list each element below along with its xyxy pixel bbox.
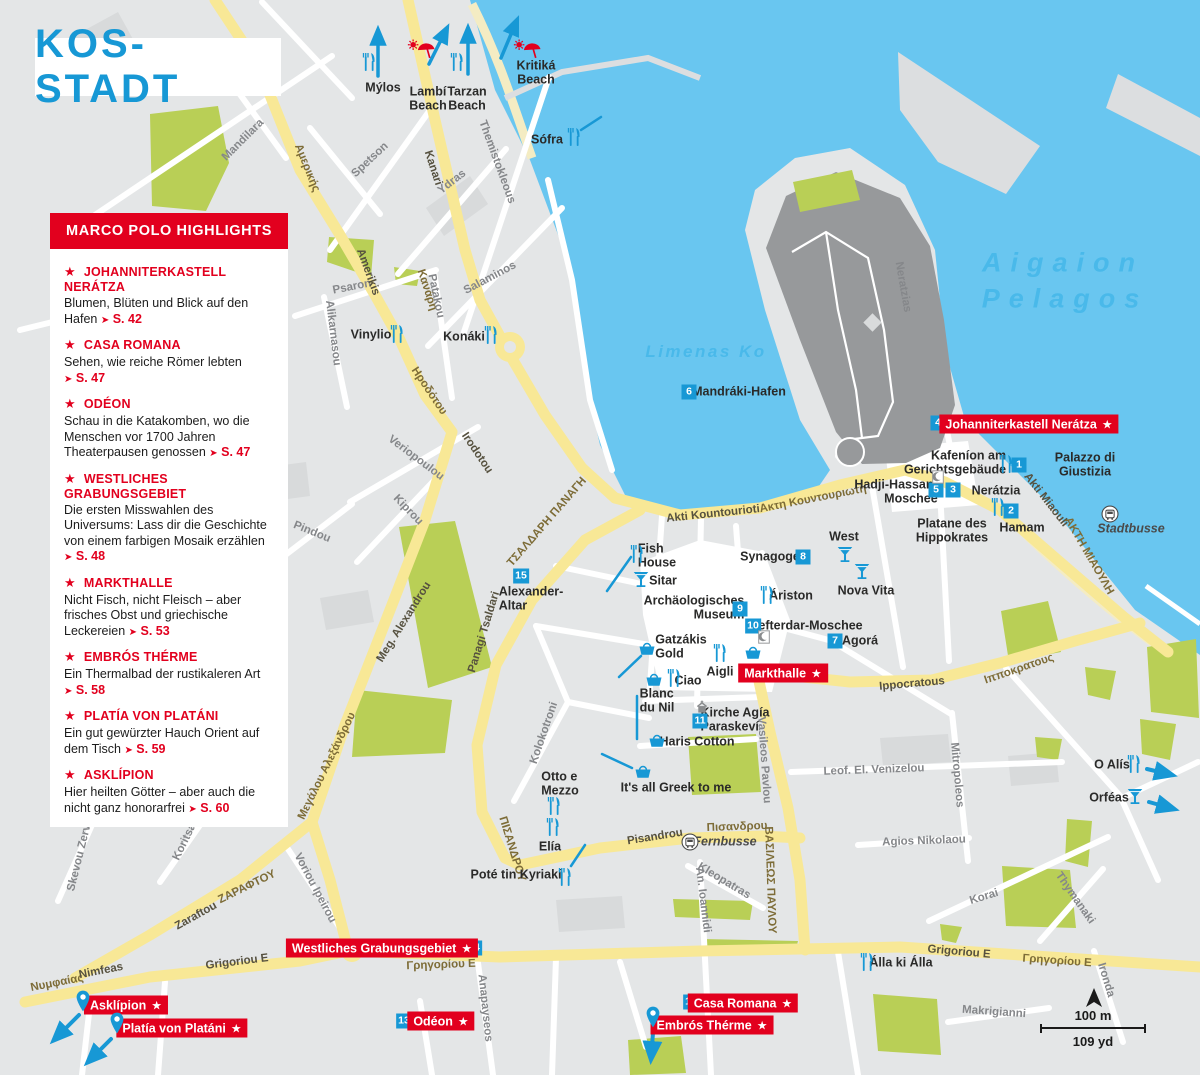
star-icon: ★ [64, 337, 76, 352]
fork-icon [1126, 754, 1141, 774]
map-title: KOS-STADT [35, 38, 281, 96]
street-label: Panagi Tsaldari [466, 590, 502, 674]
scale-metric: 100 m [1040, 1008, 1146, 1023]
numbered-badge: 1 [1012, 458, 1027, 473]
star-icon: ★ [64, 575, 76, 590]
poi-label: Kritiká Beach [517, 60, 556, 87]
star-icon: ★ [151, 998, 162, 1012]
street-label: Μεγάλου Αλεξάνδρου [296, 710, 358, 821]
fork-icon [557, 867, 572, 887]
highlight-item: ★EMBRÓS THÉRMEEin Thermalbad der rustika… [50, 640, 288, 699]
street-label: Mitropoleos [948, 742, 966, 808]
fork-icon [449, 52, 464, 72]
sight-label: Westliches Grabungsgebiet★ [286, 939, 478, 958]
street-label: Neratzias [893, 261, 914, 313]
scale-bar: 100 m 109 yd [1040, 1008, 1146, 1049]
street-label: Makrigianni [962, 1004, 1027, 1020]
poi-label: Álla ki Álla [869, 956, 932, 970]
poi-label: Blanc du Nil [640, 688, 675, 715]
highlight-name: ★WESTLICHES GRABUNGSGEBIET [64, 471, 276, 501]
star-icon: ★ [64, 471, 76, 486]
pin-icon [109, 1012, 125, 1035]
street-label: Γρηγορίου E [406, 958, 476, 972]
fork-icon [566, 127, 581, 147]
fork-icon [998, 454, 1013, 474]
cocktail-icon [854, 563, 870, 581]
street-label: Ippocratous [879, 675, 946, 693]
numbered-badge: 8 [796, 550, 811, 565]
poi-label: Synagoge [740, 550, 800, 564]
street-label: Kanari [422, 149, 444, 187]
highlight-description: Blumen, Blüten und Blick auf den Hafen ➤… [64, 296, 276, 328]
north-arrow-icon [1085, 988, 1103, 1008]
sight-label: Johanniterkastell Nerátza★ [939, 415, 1118, 434]
street-label: Kolokotroni [528, 701, 560, 766]
street-label: Spetson [349, 140, 390, 180]
fork-icon [859, 952, 874, 972]
highlight-item: ★CASA ROMANASehen, wie reiche Römer lebt… [50, 328, 288, 387]
poi-label: Aigli [706, 665, 733, 679]
street-label: ΒΑΣΙΛΕΩΣ ΠΑΥΛΟΥ [762, 826, 778, 934]
street-label: Themistokleous [476, 119, 517, 205]
highlight-name: ★PLATÍA VON PLATÁNI [64, 708, 276, 724]
poi-label: Fish House [638, 543, 676, 570]
street-label: Pisandrou [626, 827, 683, 848]
basket-icon [744, 645, 762, 660]
highlight-description: Nicht Fisch, nicht Fleisch – aber frisch… [64, 593, 276, 641]
sight-label: Odéon★ [407, 1012, 474, 1031]
fork-icon [545, 817, 560, 837]
poi-label: Orféas [1089, 791, 1129, 805]
highlight-description: Die ersten Misswahlen des Universums: La… [64, 503, 276, 566]
highlight-page-ref: ➤ S. 47 [209, 445, 250, 459]
beach-icon [407, 39, 435, 62]
star-icon: ★ [781, 996, 792, 1010]
sight-label: Casa Romana★ [688, 994, 798, 1013]
highlights-list: ★JOHANNITERKASTELL NERÁTZABlumen, Blüten… [50, 255, 288, 817]
highlight-description: Sehen, wie reiche Römer lebten ➤ S. 47 [64, 355, 276, 387]
fork-icon [629, 544, 644, 564]
poi-label: Kafeníon am Gerichtsgebäude [904, 450, 1006, 477]
bus-icon [1101, 505, 1119, 523]
fork-icon [990, 497, 1005, 517]
poi-label: Archäologisches Museum [644, 595, 745, 622]
scale-imperial: 109 yd [1040, 1034, 1146, 1049]
street-label: Αμερικής [292, 142, 322, 193]
transport-label: Stadtbusse [1097, 522, 1164, 536]
numbered-badge: 5 [929, 483, 944, 498]
fork-icon [759, 585, 774, 605]
poi-label: Sófra [531, 133, 563, 147]
highlight-page-ref: ➤ S. 58 [64, 683, 105, 697]
poi-label: Hamam [999, 521, 1044, 535]
poi-label: Platane des Hippokrates [916, 518, 988, 545]
street-label: Kiprou [391, 493, 425, 528]
poi-label: Nova Vita [838, 584, 895, 598]
highlight-page-ref: ➤ S. 48 [64, 549, 105, 563]
highlight-item: ★MARKTHALLENicht Fisch, nicht Fleisch – … [50, 566, 288, 641]
poi-label: Vinylio [351, 328, 392, 342]
street-label: Irodotou [459, 430, 495, 475]
map-title-text: KOS-STADT [35, 22, 281, 112]
basket-icon [648, 733, 666, 748]
star-icon: ★ [64, 396, 76, 411]
star-icon: ★ [1102, 417, 1113, 431]
street-label: Γρηγορίου E [1022, 953, 1092, 970]
poi-label: Elía [539, 840, 561, 854]
star-icon: ★ [757, 1018, 768, 1032]
street-label: Meg. Alexandrou [374, 580, 433, 665]
highlight-item: ★WESTLICHES GRABUNGSGEBIETDie ersten Mis… [50, 462, 288, 566]
fork-icon [389, 324, 404, 344]
scale-bar-line [1040, 1024, 1146, 1033]
sight-label: Asklípion★ [84, 996, 168, 1015]
highlight-description: Ein Thermalbad der rustikaleren Art ➤ S.… [64, 667, 276, 699]
street-label: Πισανδρου [706, 820, 767, 834]
highlight-page-ref: ➤ S. 42 [101, 312, 142, 326]
church-icon [696, 701, 709, 714]
numbered-badge: 11 [692, 714, 707, 729]
fork-icon [361, 52, 376, 72]
street-label: Ηροδότου [409, 365, 450, 417]
poi-label: West [829, 530, 859, 544]
star-icon: ★ [458, 1014, 469, 1028]
city-map: MandilaraΑμερικήςSpetsonKanariΚανάρηYdra… [0, 0, 1200, 1075]
fork-icon [546, 796, 561, 816]
street-label: Ακτη Κουντουριωτη [759, 483, 868, 516]
street-label: Nimfeas [78, 961, 124, 981]
sight-label: Platía von Platáni★ [116, 1019, 247, 1038]
highlight-page-ref: ➤ S. 53 [129, 624, 170, 638]
poi-label: Mandráki-Hafen [692, 385, 786, 399]
poi-label: Nerátzia [972, 484, 1021, 498]
street-label: Leof. El. Venizelou [823, 762, 924, 778]
bus-icon [681, 833, 699, 851]
street-label: Grigoriou E [927, 943, 991, 960]
street-label: Pindou [292, 519, 333, 545]
numbered-badge: 3 [946, 483, 961, 498]
poi-label: Lambí Beach [409, 86, 447, 113]
fork-icon [712, 643, 727, 663]
star-icon: ★ [64, 264, 76, 279]
highlights-panel: MARCO POLO HIGHLIGHTS ★JOHANNITERKASTELL… [50, 213, 288, 827]
poi-label: Mýlos [365, 81, 400, 95]
pin-icon [75, 990, 91, 1013]
sight-label: Markthalle★ [738, 664, 828, 683]
highlight-name: ★MARKTHALLE [64, 575, 276, 591]
numbered-badge: 6 [682, 385, 697, 400]
numbered-badge: 15 [513, 569, 529, 584]
poi-label: Gatzákis Gold [655, 634, 706, 661]
highlight-name: ★ASKLÍPION [64, 767, 276, 783]
street-label: Veriopoulou [386, 433, 446, 483]
highlight-item: ★ASKLÍPIONHier heilten Götter – aber auc… [50, 758, 288, 817]
poi-label: Tarzan Beach [447, 86, 486, 113]
highlights-header: MARCO POLO HIGHLIGHTS [50, 213, 288, 249]
star-icon: ★ [64, 767, 76, 782]
street-label: Agios Nikolaou [882, 834, 966, 849]
highlight-item: ★ODÉONSchau in die Katakomben, wo die Me… [50, 387, 288, 462]
highlight-name: ★CASA ROMANA [64, 337, 276, 353]
poi-label: Palazzo di Giustizia [1028, 452, 1143, 479]
poi-label: Áriston [769, 589, 813, 603]
cocktail-icon [837, 546, 853, 564]
highlight-description: Schau in die Katakomben, wo die Menschen… [64, 414, 276, 462]
basket-icon [645, 672, 663, 687]
transport-label: Fernbusse [693, 835, 756, 849]
poi-label: Hadji-Hassan- Moschee [854, 479, 937, 506]
highlight-name: ★ODÉON [64, 396, 276, 412]
highlight-page-ref: ➤ S. 59 [124, 742, 165, 756]
fork-icon [666, 668, 681, 688]
numbered-badge: 2 [1004, 504, 1019, 519]
basket-icon [638, 641, 656, 656]
street-label: Anapayseos [475, 974, 494, 1043]
highlight-description: Hier heilten Götter – aber auch die nich… [64, 785, 276, 817]
star-icon: ★ [231, 1021, 242, 1035]
poi-label: It's all Greek to me [621, 781, 732, 795]
street-label: Akti Kountourioti [666, 503, 761, 525]
sea-label: Aigaion [982, 248, 1144, 279]
sea-label: Limenas Ko [645, 342, 766, 362]
numbered-badge: 7 [828, 634, 843, 649]
street-label: Grigoriou E [205, 952, 269, 972]
poi-label: O Alís [1094, 758, 1130, 772]
street-label: Alikarnasou [323, 300, 343, 367]
highlight-page-ref: ➤ S. 47 [64, 371, 105, 385]
street-label: Mandilara [220, 117, 266, 163]
sea-label: Pelagos [982, 284, 1149, 315]
highlight-name: ★JOHANNITERKASTELL NERÁTZA [64, 264, 276, 294]
street-label: Voriou Ipeirou [292, 851, 339, 925]
poi-label: Alexander- Altar [499, 586, 564, 613]
street-label: Ιπποκρατους [983, 652, 1056, 687]
street-label: Thymanaki [1053, 870, 1097, 926]
highlight-item: ★PLATÍA VON PLATÁNIEin gut gewürzter Hau… [50, 699, 288, 758]
star-icon: ★ [64, 708, 76, 723]
street-label: Korai [968, 887, 1000, 907]
mosque-icon [758, 630, 770, 644]
poi-label: Sitar [649, 574, 677, 588]
fork-icon [483, 325, 498, 345]
star-icon: ★ [461, 941, 472, 955]
numbered-badge: 9 [733, 602, 748, 617]
poi-label: Otto e Mezzo [541, 771, 579, 798]
beach-icon [513, 39, 541, 62]
street-label: ΤΣΑΛΔΑΡΗ ΠΑΝΑΓΗ [505, 475, 589, 569]
highlight-description: Ein gut gewürzter Hauch Orient auf dem T… [64, 726, 276, 758]
poi-label: Kirche Agía Paraskeví [700, 707, 769, 734]
poi-label: Haris Cotton [660, 735, 735, 749]
star-icon: ★ [811, 666, 822, 680]
highlight-name: ★EMBRÓS THÉRME [64, 649, 276, 665]
star-icon: ★ [64, 649, 76, 664]
street-label: ΖΑΡΑΦΤΟΥ [216, 868, 277, 906]
pin-icon [645, 1006, 661, 1029]
highlight-page-ref: ➤ S. 60 [188, 801, 229, 815]
cocktail-icon [1127, 788, 1143, 806]
cocktail-icon [633, 571, 649, 589]
street-label: Zaraftou [173, 900, 219, 933]
poi-label: Poté tin Kyriakí [471, 868, 562, 882]
sight-label: Embrós Thérme★ [651, 1016, 774, 1035]
highlight-item: ★JOHANNITERKASTELL NERÁTZABlumen, Blüten… [50, 255, 288, 328]
mosque-icon [932, 470, 944, 484]
street-label: Salaminos [462, 259, 518, 297]
poi-label: Konáki [443, 330, 485, 344]
basket-icon [634, 764, 652, 779]
poi-label: Agorá [842, 634, 878, 648]
